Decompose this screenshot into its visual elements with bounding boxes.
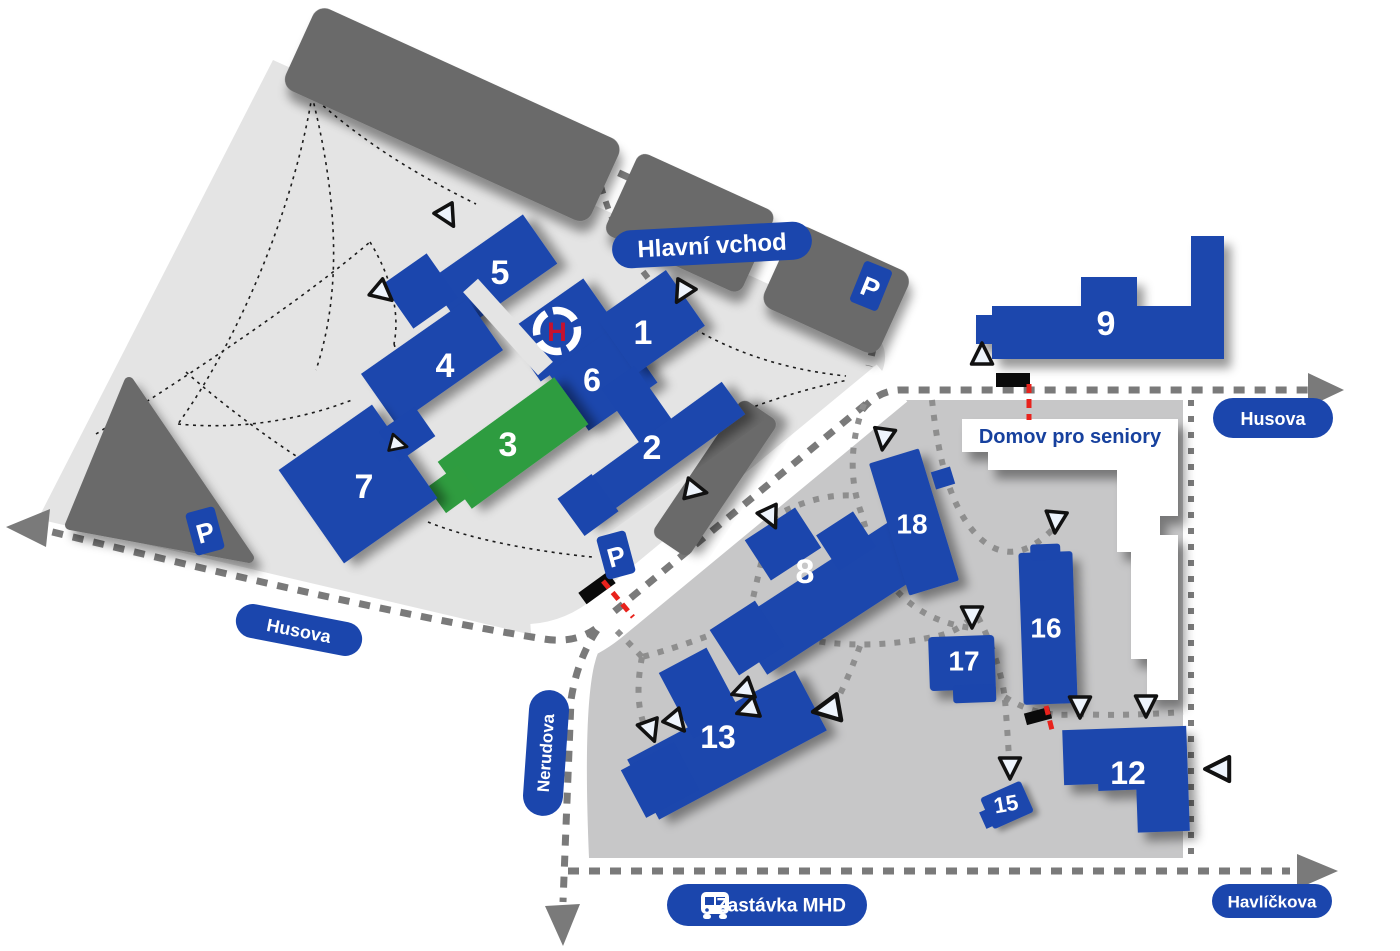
gate-barrier [996,373,1030,387]
entrance-arrow-icon [972,343,993,364]
arrow-southeast-icon [1297,854,1338,889]
arrow-west-icon [6,509,50,547]
building-18-number: 18 [896,509,927,540]
street-pill-nerudova: Nerudova [522,689,571,817]
building-16-number: 16 [1030,613,1061,644]
building-9-number: 9 [1097,305,1116,343]
entrance-arrow-icon [1205,757,1229,781]
building-8-number: 8 [796,553,815,591]
street-label-havlickova: Havlíčkova [1228,893,1317,912]
street-pill-husova-east: Husova [1213,398,1333,438]
campus-map-canvas: 9 Domov pro seniory [0,0,1400,951]
building-3-number: 3 [499,426,518,464]
building-4-number: 4 [436,347,455,385]
building-7-number: 7 [355,468,374,506]
street-pill-husova-west: Husova [233,601,365,659]
building-12-number: 12 [1110,755,1146,791]
helipad-letter: H [547,317,567,347]
street-label-husova-east: Husova [1240,409,1306,429]
arrow-south-icon [545,904,580,946]
bus-stop-label: Zastávka MHD [716,896,846,917]
building-17-number: 17 [948,646,979,677]
building-6-number: 6 [583,362,601,398]
building-5-number: 5 [491,254,510,292]
building-1-number: 1 [634,314,653,352]
seniors-home-label: Domov pro seniory [979,426,1162,448]
campus-map: 9 Domov pro seniory [0,0,1400,951]
building-2-number: 2 [643,429,662,467]
building-15-number: 15 [992,790,1020,819]
helipad: H [533,307,582,356]
building-13-number: 13 [700,719,736,755]
street-pill-havlickova: Havlíčkova [1212,884,1332,918]
bus-stop-pill: Zastávka MHD [667,884,867,926]
